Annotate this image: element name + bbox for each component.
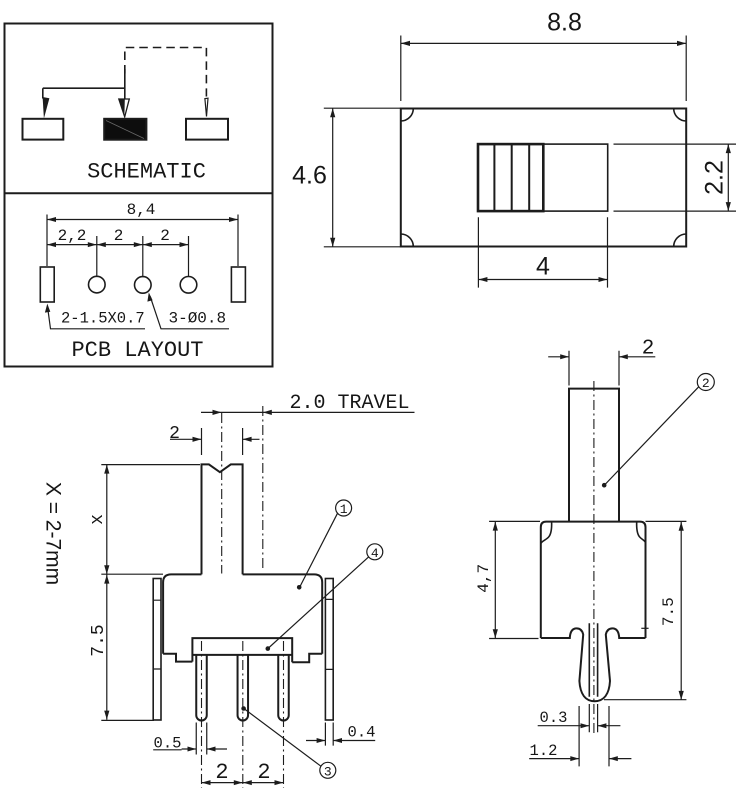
svg-text:2.0 TRAVEL: 2.0 TRAVEL: [290, 392, 410, 415]
svg-text:X = 2-7mm: X = 2-7mm: [42, 482, 65, 585]
svg-text:1: 1: [340, 502, 348, 517]
svg-text:3: 3: [324, 764, 332, 779]
svg-text:2-1.5X0.7: 2-1.5X0.7: [61, 310, 145, 328]
svg-text:2,2: 2,2: [58, 227, 87, 245]
svg-text:2: 2: [169, 424, 180, 444]
svg-text:2.2: 2.2: [701, 160, 729, 195]
svg-text:2: 2: [114, 227, 124, 245]
svg-text:4: 4: [371, 546, 379, 561]
svg-text:4: 4: [536, 253, 550, 281]
svg-text:7.5: 7.5: [89, 624, 109, 656]
svg-text:0.3: 0.3: [540, 709, 568, 727]
svg-text:8,4: 8,4: [127, 201, 156, 219]
svg-text:7.5: 7.5: [660, 597, 678, 626]
svg-text:8.8: 8.8: [547, 9, 582, 37]
svg-text:PCB LAYOUT: PCB LAYOUT: [71, 338, 203, 363]
svg-text:0.4: 0.4: [348, 724, 376, 742]
svg-text:2: 2: [215, 760, 228, 785]
svg-text:2: 2: [702, 376, 710, 391]
svg-text:x: x: [88, 514, 108, 525]
svg-text:4.6: 4.6: [292, 162, 327, 190]
svg-text:SCHEMATIC: SCHEMATIC: [87, 160, 206, 185]
svg-text:1.2: 1.2: [530, 742, 558, 760]
svg-text:4,7: 4,7: [475, 564, 493, 593]
svg-text:3-Ø0.8: 3-Ø0.8: [169, 310, 227, 328]
svg-text:2: 2: [257, 760, 270, 785]
svg-text:2: 2: [160, 227, 170, 245]
